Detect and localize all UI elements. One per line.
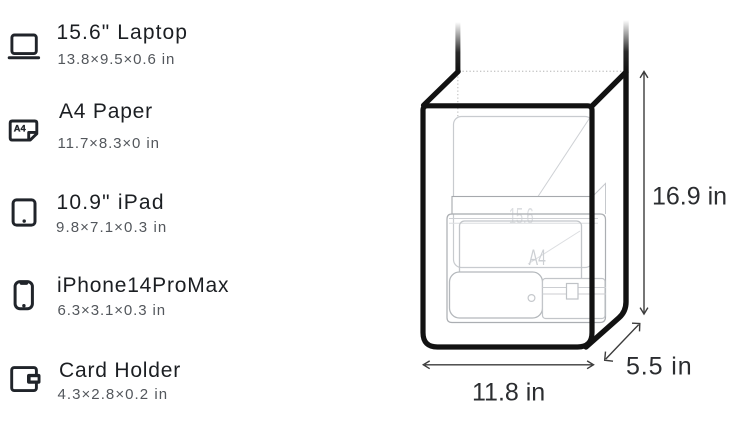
svg-text:11.8 in: 11.8 in [472,379,545,407]
svg-text:A4: A4 [529,245,546,270]
svg-text:16.9 in: 16.9 in [652,183,727,211]
svg-text:15.6: 15.6 [509,204,534,229]
svg-text:5.5 in: 5.5 in [626,353,693,381]
